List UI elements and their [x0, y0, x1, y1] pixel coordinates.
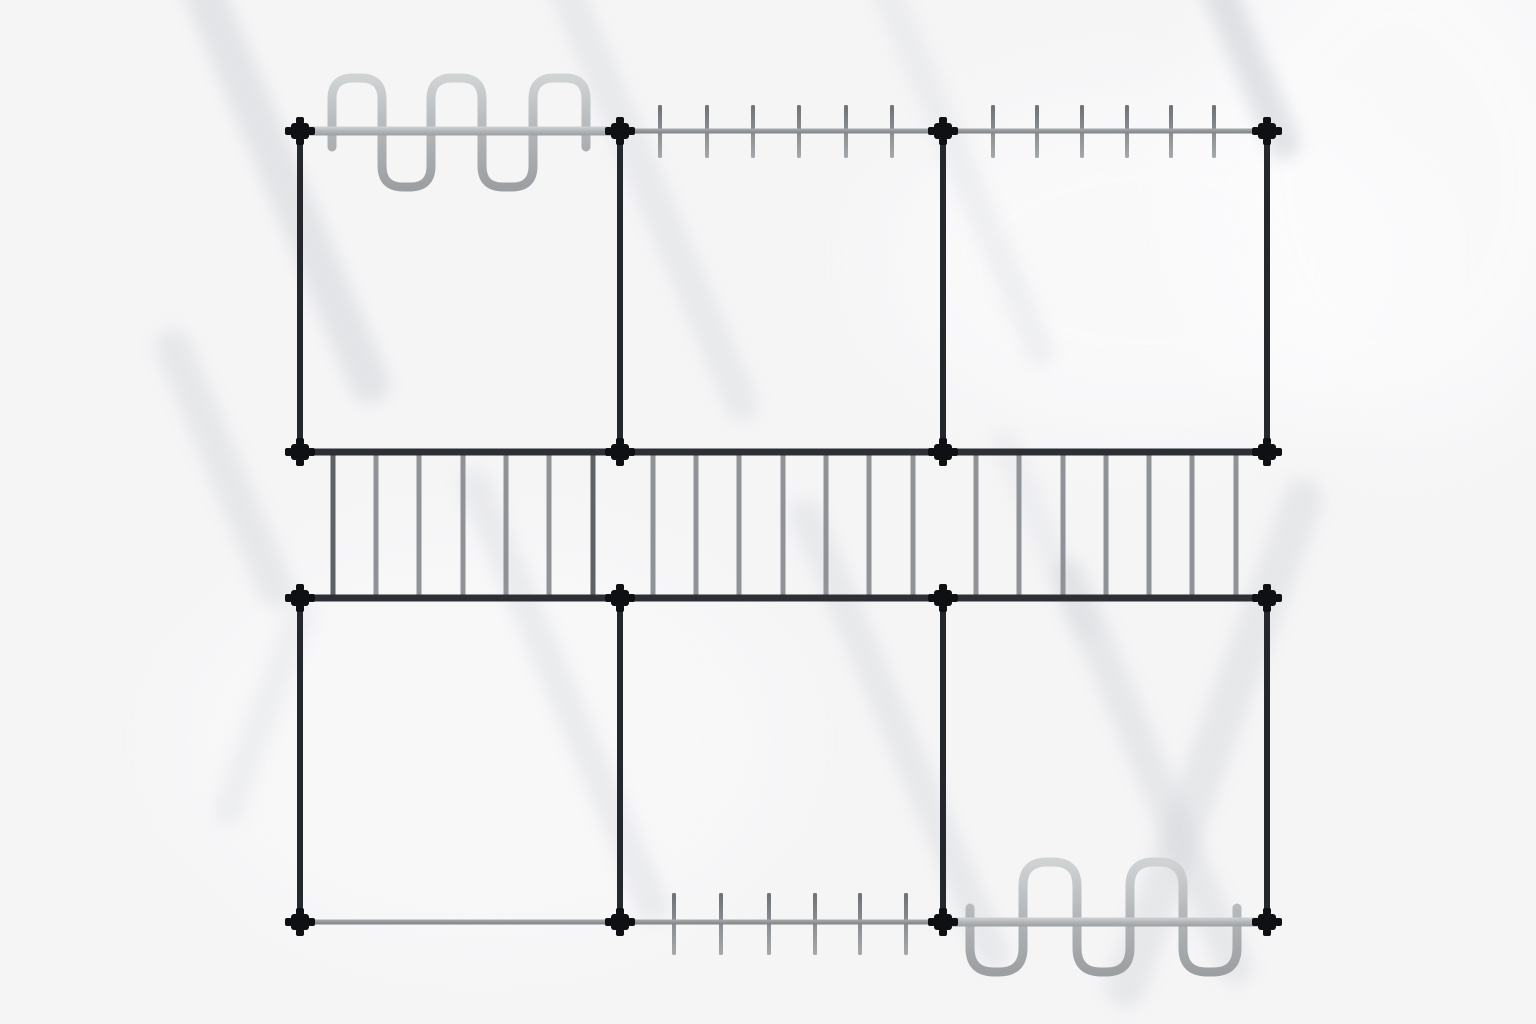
- node-stub-top: [296, 908, 304, 915]
- node-stub-left: [605, 448, 612, 456]
- node-stub-top: [616, 908, 624, 915]
- node-stub-top: [939, 438, 947, 445]
- node-stub-top: [296, 438, 304, 445]
- node-stub-bottom: [1263, 605, 1271, 612]
- node-stub-right: [1275, 448, 1282, 456]
- rail-gray: [300, 920, 620, 925]
- node-stub-left: [1252, 594, 1259, 602]
- frame-post: [1264, 131, 1270, 452]
- node-stub-bottom: [939, 929, 947, 936]
- ladder-rung: [1234, 452, 1239, 598]
- frame-post: [297, 131, 303, 452]
- node-body: [1258, 444, 1276, 460]
- node-stub-bottom: [1263, 459, 1271, 466]
- node-body: [1258, 914, 1276, 930]
- node-stub-right: [951, 448, 958, 456]
- node-stub-top: [616, 584, 624, 591]
- ladder-rung: [1190, 452, 1195, 598]
- node-stub-left: [1252, 127, 1259, 135]
- ladder-rung: [1104, 452, 1109, 598]
- node-stub-top: [616, 117, 624, 124]
- node-stub-left: [285, 127, 292, 135]
- node-stub-left: [928, 448, 935, 456]
- node-body: [291, 123, 309, 139]
- node-stub-top: [1263, 117, 1271, 124]
- node-stub-top: [1263, 908, 1271, 915]
- node-stub-bottom: [1263, 929, 1271, 936]
- node-stub-bottom: [616, 929, 624, 936]
- node-stub-left: [1252, 918, 1259, 926]
- rail-gray: [620, 920, 943, 925]
- ladder-rung: [824, 452, 829, 598]
- node-body: [1258, 123, 1276, 139]
- node-stub-left: [928, 594, 935, 602]
- node-stub-bottom: [939, 605, 947, 612]
- node-stub-right: [628, 448, 635, 456]
- ladder-rung: [867, 452, 872, 598]
- node-stub-left: [605, 594, 612, 602]
- node-stub-top: [1263, 438, 1271, 445]
- ladder-rung: [781, 452, 786, 598]
- rail-tube: [300, 127, 620, 136]
- ladder-rung: [1017, 452, 1022, 598]
- node-stub-right: [308, 127, 315, 135]
- node-stub-left: [605, 127, 612, 135]
- frame-post: [940, 598, 946, 922]
- ladder-rung: [974, 452, 979, 598]
- node-body: [611, 444, 629, 460]
- node-body: [1258, 590, 1276, 606]
- node-stub-left: [928, 127, 935, 135]
- node-stub-right: [628, 594, 635, 602]
- ladder-rung: [911, 452, 916, 598]
- node-stub-bottom: [296, 138, 304, 145]
- node-stub-bottom: [616, 605, 624, 612]
- ladder-rung: [461, 452, 466, 598]
- node-stub-left: [285, 448, 292, 456]
- rail-tube: [943, 918, 1267, 927]
- node-stub-bottom: [939, 138, 947, 145]
- frame-post: [617, 598, 623, 922]
- node-body: [934, 914, 952, 930]
- frame-post: [1264, 598, 1270, 922]
- node-stub-left: [605, 918, 612, 926]
- node-stub-bottom: [939, 459, 947, 466]
- node-stub-top: [939, 117, 947, 124]
- node-stub-top: [1263, 584, 1271, 591]
- node-stub-left: [285, 918, 292, 926]
- ladder-rung: [504, 452, 509, 598]
- node-stub-right: [1275, 918, 1282, 926]
- rail-gray: [620, 129, 943, 134]
- node-stub-left: [285, 594, 292, 602]
- frame-post: [617, 131, 623, 452]
- node-body: [934, 123, 952, 139]
- node-body: [611, 914, 629, 930]
- rail-dark: [300, 595, 1267, 602]
- node-body: [611, 590, 629, 606]
- node-stub-top: [616, 438, 624, 445]
- node-stub-left: [928, 918, 935, 926]
- node-stub-right: [951, 594, 958, 602]
- node-body: [611, 123, 629, 139]
- node-stub-right: [628, 127, 635, 135]
- node-stub-top: [939, 584, 947, 591]
- ladder-rung: [331, 452, 336, 598]
- node-stub-left: [1252, 448, 1259, 456]
- node-body: [934, 590, 952, 606]
- ladder-rung: [737, 452, 742, 598]
- node-stub-right: [308, 594, 315, 602]
- node-stub-right: [308, 918, 315, 926]
- scene-background: [0, 0, 1536, 1024]
- node-stub-right: [308, 448, 315, 456]
- ladder-rung: [547, 452, 552, 598]
- node-body: [934, 444, 952, 460]
- frame-post: [940, 131, 946, 452]
- node-stub-right: [951, 127, 958, 135]
- ladder-rung: [374, 452, 379, 598]
- ladder-rung: [694, 452, 699, 598]
- node-stub-bottom: [616, 459, 624, 466]
- node-stub-bottom: [296, 459, 304, 466]
- node-body: [291, 914, 309, 930]
- node-stub-bottom: [1263, 138, 1271, 145]
- node-stub-right: [951, 918, 958, 926]
- ladder-rung: [591, 452, 596, 598]
- ladder-rung: [651, 452, 656, 598]
- ladder-rung: [1061, 452, 1066, 598]
- node-stub-top: [296, 117, 304, 124]
- node-body: [291, 444, 309, 460]
- rail-dark: [300, 449, 1267, 456]
- structure-render: [0, 0, 1536, 1024]
- node-stub-top: [939, 908, 947, 915]
- node-stub-bottom: [616, 138, 624, 145]
- node-stub-bottom: [296, 929, 304, 936]
- rail-gray: [943, 129, 1267, 134]
- node-stub-right: [1275, 127, 1282, 135]
- frame-post: [297, 598, 303, 922]
- node-stub-right: [628, 918, 635, 926]
- node-body: [291, 590, 309, 606]
- ladder-rung: [417, 452, 422, 598]
- node-stub-top: [296, 584, 304, 591]
- node-stub-right: [1275, 594, 1282, 602]
- node-stub-bottom: [296, 605, 304, 612]
- ladder-rung: [1147, 452, 1152, 598]
